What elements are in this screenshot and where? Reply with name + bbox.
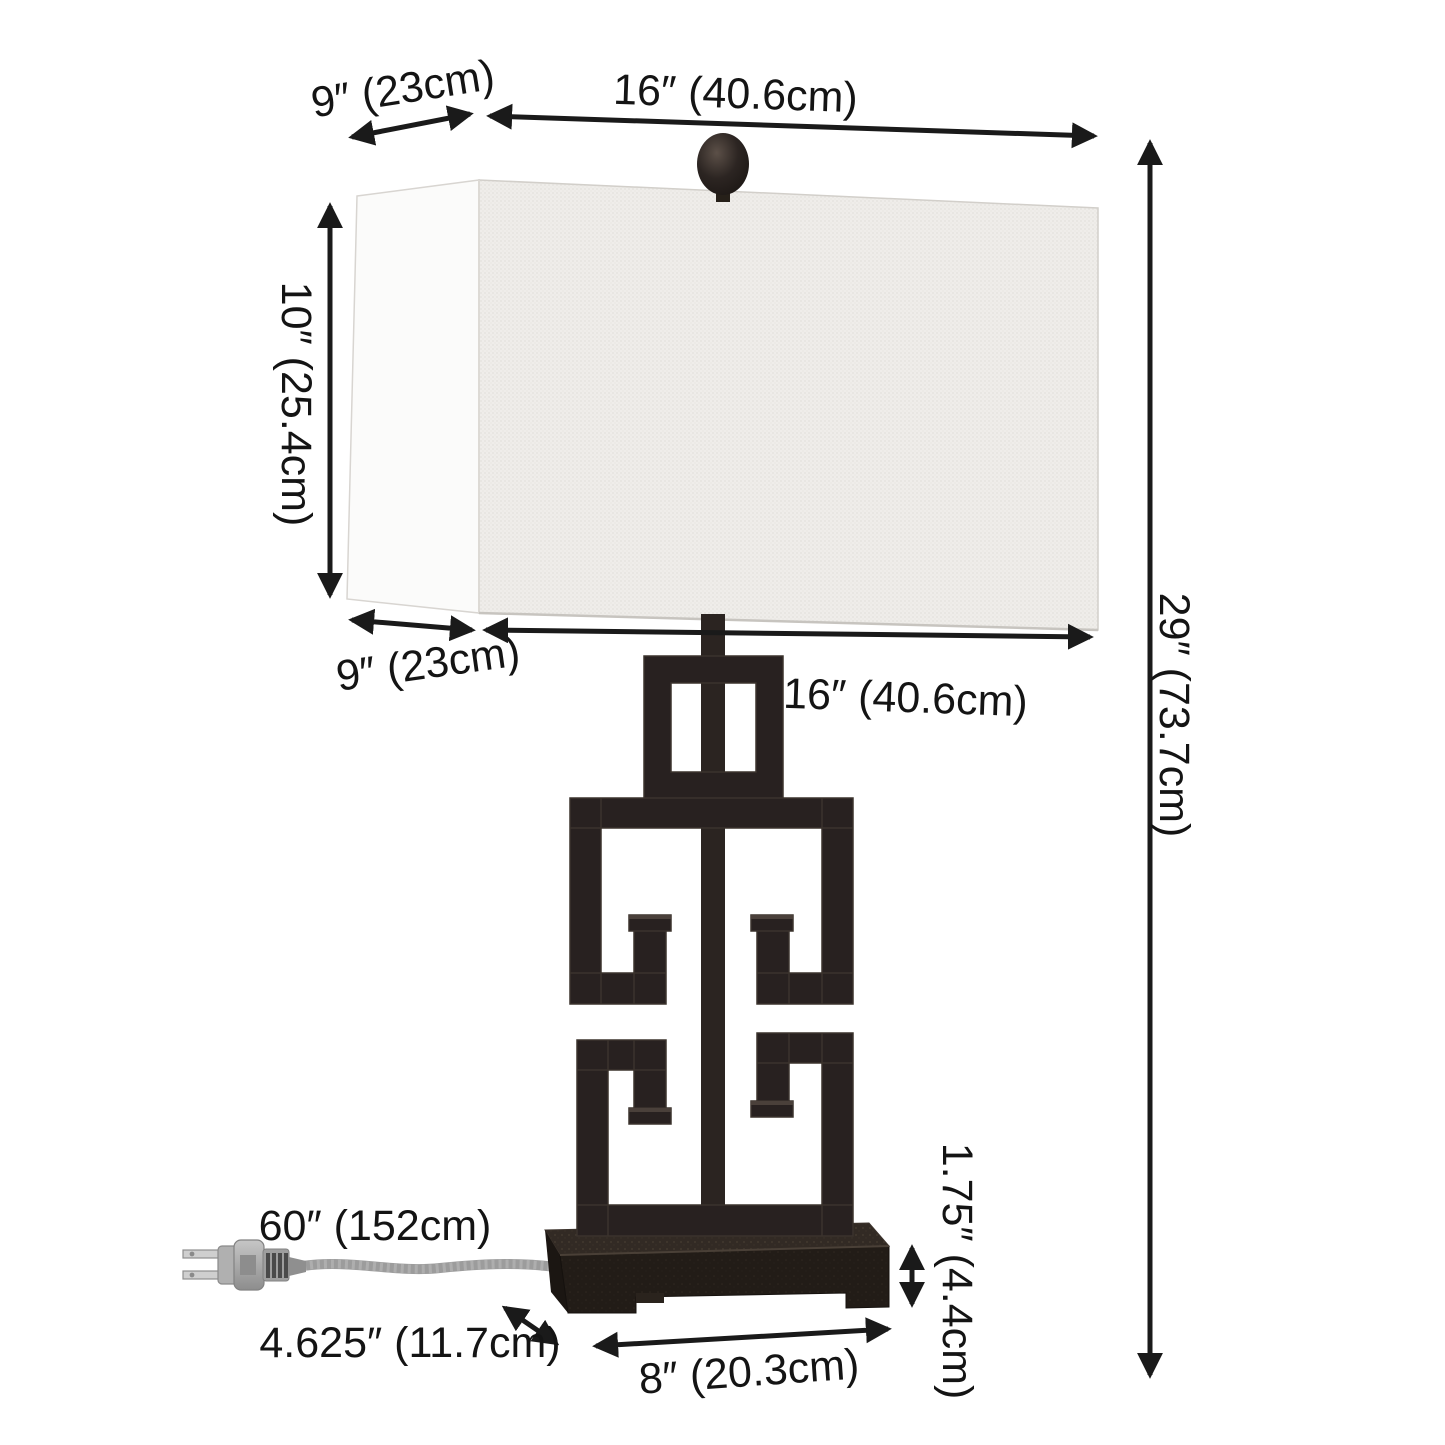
dim-base-depth: 4.625″ (11.7cm): [259, 1308, 560, 1367]
plug-prong-top: [183, 1250, 223, 1258]
dim-overall-height: 29″ (73.7cm): [1150, 143, 1198, 1375]
dim-shade-bottom-width: 16″ (40.6cm): [486, 630, 1090, 726]
cord-length-label: 60″ (152cm): [259, 1202, 492, 1250]
shade-bottom-depth-label: 9″ (23cm): [333, 628, 523, 701]
dim-shade-top-depth: 9″ (23cm): [308, 51, 498, 137]
plug-boot: [289, 1257, 306, 1276]
lamp-dimension-diagram: 9″ (23cm) 16″ (40.6cm) 10″ (25.4cm) 9″ (…: [0, 0, 1445, 1445]
dim-shade-height: 10″ (25.4cm): [272, 206, 330, 595]
dim-base-height: 1.75″ (4.4cm): [912, 1143, 981, 1400]
base-height-label: 1.75″ (4.4cm): [933, 1143, 981, 1400]
base-depth-label: 4.625″ (11.7cm): [259, 1319, 560, 1367]
plug-rib-3: [278, 1253, 282, 1278]
shade-bottom-width-label: 16″ (40.6cm): [782, 670, 1028, 727]
dim-base-width: 8″ (20.3cm): [596, 1329, 888, 1404]
base-plinth-recess-step: [636, 1293, 664, 1303]
finial-ball: [697, 133, 749, 195]
base-plinth-front-face: [560, 1246, 889, 1313]
plug-body-marking: [240, 1255, 256, 1275]
dim-cord-length: 60″ (152cm): [259, 1202, 492, 1250]
overall-height-label: 29″ (73.7cm): [1150, 593, 1198, 838]
upper-left-hook-cap-highlight: [629, 915, 671, 919]
shade-bottom-width-arrow: [486, 630, 1090, 637]
plug-prong-bottom: [183, 1271, 223, 1279]
base-width-label: 8″ (20.3cm): [637, 1340, 861, 1403]
shade-top-width-label: 16″ (40.6cm): [612, 66, 858, 123]
shade-front-face: [479, 180, 1098, 630]
dim-shade-top-width: 16″ (40.6cm): [490, 66, 1094, 136]
lamp-shade: [347, 180, 1098, 630]
lower-left-hook-cap-highlight: [629, 1108, 671, 1112]
lower-right-hook-cap-highlight: [751, 1101, 793, 1105]
plug-rib-1: [266, 1253, 270, 1278]
dimension-diagram-page: 9″ (23cm) 16″ (40.6cm) 10″ (25.4cm) 9″ (…: [0, 0, 1445, 1445]
plug-prong-bottom-hole: [190, 1273, 195, 1278]
shade-bottom-depth-arrow: [352, 620, 472, 630]
plug-prong-top-hole: [190, 1252, 195, 1257]
plug-rib-2: [272, 1253, 276, 1278]
plug-rib-4: [284, 1253, 288, 1278]
power-cord: [303, 1264, 556, 1269]
lamp-center-rod: [701, 614, 725, 1206]
shade-side-face: [347, 180, 479, 613]
upper-right-hook-cap-highlight: [751, 915, 793, 919]
shade-height-label: 10″ (25.4cm): [272, 282, 320, 527]
